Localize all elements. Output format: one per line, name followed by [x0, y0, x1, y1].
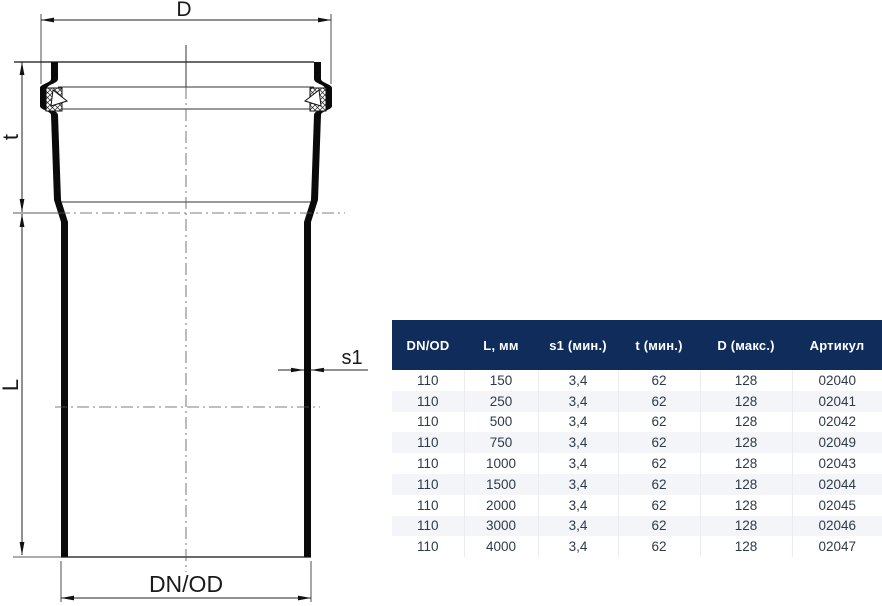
d-arrow-left — [41, 18, 54, 23]
spec-cell: 3,4 — [538, 474, 618, 495]
spec-cell: 02044 — [792, 474, 882, 495]
spec-cell: 110 — [392, 516, 464, 537]
spec-cell: 128 — [700, 516, 792, 537]
spec-cell: 128 — [700, 453, 792, 474]
spec-cell: 62 — [618, 516, 700, 537]
spec-cell: 128 — [700, 536, 792, 557]
spec-cell: 3,4 — [538, 391, 618, 412]
col-header-t: t (мин.) — [618, 320, 700, 370]
spec-cell: 02046 — [792, 516, 882, 537]
pipe-left-wall — [40, 62, 68, 557]
spec-cell: 62 — [618, 474, 700, 495]
spec-cell: 110 — [392, 474, 464, 495]
spec-cell: 110 — [392, 391, 464, 412]
spec-cell: 3000 — [464, 516, 538, 537]
table-row: 11040003,46212802047 — [392, 536, 882, 557]
spec-cell: 110 — [392, 432, 464, 453]
spec-cell: 110 — [392, 412, 464, 433]
spec-table-head: DN/OD L, мм s1 (мин.) t (мин.) D (макс.)… — [392, 320, 882, 370]
seal-ring-left — [46, 88, 67, 111]
spec-table-body: 1101503,462128020401102503,4621280204111… — [392, 370, 882, 557]
spec-cell: 02049 — [792, 432, 882, 453]
table-row: 1105003,46212802042 — [392, 412, 882, 433]
edge-lines — [14, 62, 314, 557]
spec-cell: 500 — [464, 412, 538, 433]
dnod-arrow-left — [61, 596, 74, 601]
spec-cell: 3,4 — [538, 432, 618, 453]
header-row: DN/OD L, мм s1 (мин.) t (мин.) D (макс.)… — [392, 320, 882, 370]
spec-cell: 02042 — [792, 412, 882, 433]
spec-cell: 02047 — [792, 536, 882, 557]
spec-cell: 62 — [618, 495, 700, 516]
t-arrow-top — [20, 62, 25, 75]
col-header-dnod: DN/OD — [392, 320, 464, 370]
col-header-length: L, мм — [464, 320, 538, 370]
spec-cell: 62 — [618, 536, 700, 557]
spec-cell: 62 — [618, 391, 700, 412]
spec-cell: 4000 — [464, 536, 538, 557]
spec-cell: 3,4 — [538, 516, 618, 537]
page: D t L s1 — [0, 0, 882, 606]
l-arrow-top — [20, 214, 25, 227]
spec-cell: 110 — [392, 495, 464, 516]
spec-cell: 128 — [700, 412, 792, 433]
t-arrow-bottom — [20, 199, 25, 212]
table-row: 1102503,46212802041 — [392, 391, 882, 412]
pipe-right-wall — [304, 62, 332, 557]
spec-cell: 750 — [464, 432, 538, 453]
col-header-d: D (макс.) — [700, 320, 792, 370]
spec-cell: 3,4 — [538, 536, 618, 557]
l-arrow-bottom — [20, 542, 25, 555]
spec-table-container: DN/OD L, мм s1 (мин.) t (мин.) D (макс.)… — [392, 320, 882, 557]
seal-ring-right — [305, 88, 326, 111]
table-row: 11015003,46212802044 — [392, 474, 882, 495]
spec-cell: 62 — [618, 370, 700, 391]
center-lines — [55, 45, 345, 572]
d-arrow-right — [318, 18, 331, 23]
spec-cell: 110 — [392, 370, 464, 391]
table-row: 11010003,46212802043 — [392, 453, 882, 474]
spec-cell: 150 — [464, 370, 538, 391]
table-row: 1101503,46212802040 — [392, 370, 882, 391]
spec-cell: 62 — [618, 412, 700, 433]
spec-cell: 128 — [700, 370, 792, 391]
s1-arrow-right — [311, 368, 324, 372]
spec-cell: 128 — [700, 432, 792, 453]
spec-cell: 2000 — [464, 495, 538, 516]
dimension-L-label: L — [0, 379, 23, 391]
spec-cell: 3,4 — [538, 370, 618, 391]
col-header-s1: s1 (мин.) — [538, 320, 618, 370]
table-row: 11020003,46212802045 — [392, 495, 882, 516]
spec-cell: 128 — [700, 391, 792, 412]
spec-cell: 62 — [618, 432, 700, 453]
spec-cell: 250 — [464, 391, 538, 412]
dimension-dnod-label: DN/OD — [149, 571, 223, 597]
spec-cell: 3,4 — [538, 453, 618, 474]
spec-cell: 128 — [700, 474, 792, 495]
spec-cell: 1500 — [464, 474, 538, 495]
dimension-t-label: t — [0, 134, 23, 140]
dnod-arrow-right — [298, 596, 311, 601]
table-row: 1107503,46212802049 — [392, 432, 882, 453]
table-row: 11030003,46212802046 — [392, 516, 882, 537]
dimension-D-label: D — [176, 0, 191, 21]
pipe-technical-drawing: D t L s1 — [0, 0, 390, 606]
spec-cell: 3,4 — [538, 412, 618, 433]
s1-arrow-left — [291, 368, 304, 372]
dimension-s1-label: s1 — [341, 347, 362, 369]
spec-cell: 110 — [392, 453, 464, 474]
spec-cell: 62 — [618, 453, 700, 474]
spec-cell: 02045 — [792, 495, 882, 516]
spec-cell: 3,4 — [538, 495, 618, 516]
spec-cell: 128 — [700, 495, 792, 516]
spec-cell: 02043 — [792, 453, 882, 474]
col-header-article: Артикул — [792, 320, 882, 370]
spec-cell: 02041 — [792, 391, 882, 412]
spec-table: DN/OD L, мм s1 (мин.) t (мин.) D (макс.)… — [392, 320, 882, 557]
spec-cell: 110 — [392, 536, 464, 557]
spec-cell: 1000 — [464, 453, 538, 474]
spec-cell: 02040 — [792, 370, 882, 391]
